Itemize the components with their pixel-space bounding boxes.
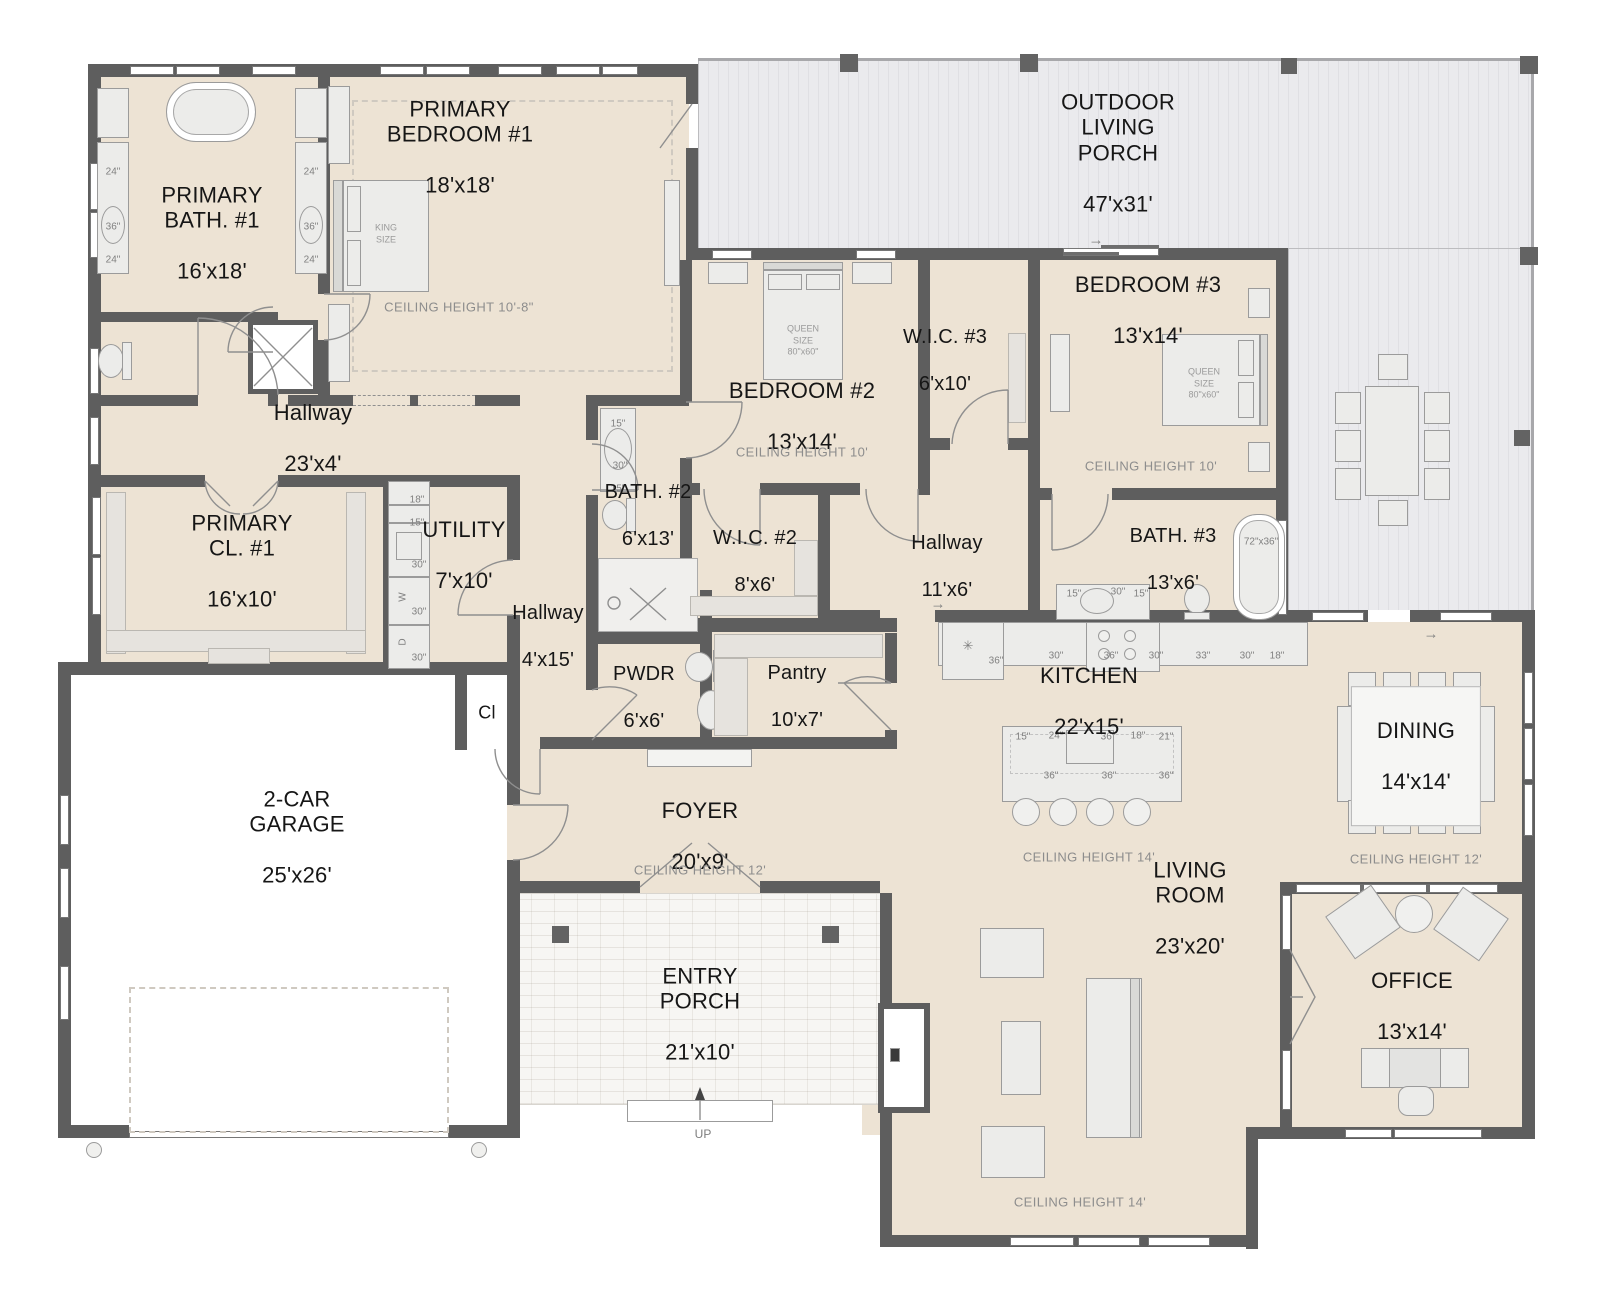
dimension-label: 15" — [1016, 732, 1031, 743]
dimension-label: D — [398, 638, 409, 645]
room-name: PWDR — [613, 663, 675, 686]
room-dims: 18'x18' — [387, 173, 533, 199]
dimension-label: 33" — [1196, 651, 1211, 662]
ceiling-label: CEILING HEIGHT 10' — [736, 445, 868, 460]
dimension-label: 21" — [1159, 732, 1174, 743]
dimension-label: 18" — [1270, 651, 1285, 662]
ceiling-label: CEILING HEIGHT 12' — [1350, 852, 1482, 867]
dimension-label: 30" — [412, 653, 427, 664]
room-dims: 14'x14' — [1377, 769, 1455, 795]
room-label-bedroom2: BEDROOM #2 13'x14' — [729, 352, 875, 480]
direction-arrow: → — [1424, 626, 1439, 643]
dimension-label: 36" — [1159, 771, 1174, 782]
room-name: PRIMARY CL. #1 — [191, 510, 292, 561]
room-dims: 16'x18' — [161, 259, 262, 285]
dimension-label: 30" — [1111, 587, 1126, 598]
room-name: FOYER — [662, 798, 739, 824]
room-name: W.I.C. #3 — [903, 326, 987, 349]
room-label-primary-bath: PRIMARY BATH. #1 16'x18' — [161, 156, 262, 309]
room-label-pwdr: PWDR 6'x6' — [613, 640, 675, 756]
door-arc — [513, 805, 568, 860]
dimension-label: ✳ — [963, 638, 974, 654]
room-dims: 11'x6' — [911, 579, 982, 602]
room-name: 2-CAR GARAGE — [249, 786, 344, 837]
door-arc — [324, 294, 370, 340]
room-dims: 4'x15' — [512, 649, 583, 672]
room-dims: 23'x20' — [1153, 934, 1226, 960]
ceiling-label: CEILING HEIGHT 12' — [634, 863, 766, 878]
room-label-garage: 2-CAR GARAGE 25'x26' — [249, 760, 344, 913]
room-name: UTILITY — [422, 517, 505, 543]
room-dims: 25'x26' — [249, 863, 344, 889]
room-label-bath3: BATH. #3 13'x6' — [1130, 502, 1217, 618]
door-arc — [1052, 494, 1108, 550]
door-arc — [495, 749, 540, 794]
dimension-label: 72"x36" — [1244, 537, 1278, 548]
room-label-wic3: W.I.C. #3 6'x10' — [903, 303, 987, 419]
room-name: W.I.C. #2 — [713, 527, 797, 550]
room-name: Hallway — [274, 400, 352, 426]
door-arc — [838, 677, 891, 730]
dimension-label: 24" — [304, 167, 319, 178]
ceiling-label: CEILING HEIGHT 10'-8" — [384, 300, 534, 315]
door-leaf — [660, 104, 692, 148]
room-dims: 47'x31' — [1061, 191, 1175, 217]
room-dims: 13'x14' — [1075, 323, 1221, 349]
room-label-wic2: W.I.C. #2 8'x6' — [713, 504, 797, 620]
room-label-closet: Cl — [478, 682, 495, 745]
dimension-label: 36" — [1102, 771, 1117, 782]
room-label-kitchen: KITCHEN 22'x15' — [1040, 637, 1138, 765]
room-name: BEDROOM #3 — [1075, 272, 1221, 298]
room-name: OUTDOOR LIVING PORCH — [1061, 89, 1175, 166]
up-label: UP — [695, 1127, 712, 1141]
dimension-label: 30" — [1149, 651, 1164, 662]
room-dims: 23'x4' — [274, 451, 352, 477]
room-name: DINING — [1377, 718, 1455, 744]
floor-plan: 24"36"24"24"36"24"15"30"15"18"15"30"W30"… — [0, 0, 1600, 1306]
room-dims: 21'x10' — [660, 1040, 740, 1066]
room-name: Hallway — [512, 602, 583, 625]
dimension-label: 36" — [304, 222, 319, 233]
room-label-pantry: Pantry 10'x7' — [767, 639, 826, 755]
door-arc — [228, 307, 273, 352]
dimension-label: W — [398, 592, 409, 601]
room-name: LIVING ROOM — [1153, 857, 1226, 908]
room-label-office: OFFICE 13'x14' — [1371, 942, 1453, 1070]
room-label-entry-porch: ENTRY PORCH 21'x10' — [660, 937, 740, 1090]
room-dims: 6'x10' — [903, 373, 987, 396]
room-dims: 8'x6' — [713, 574, 797, 597]
room-name: Pantry — [767, 662, 826, 685]
room-dims: 16'x10' — [191, 587, 292, 613]
office-opening — [1290, 950, 1315, 1044]
dimension-label: 15" — [611, 419, 626, 430]
ceiling-label: CEILING HEIGHT 14' — [1023, 850, 1155, 865]
room-name: PRIMARY BEDROOM #1 — [387, 96, 533, 147]
room-name: BEDROOM #2 — [729, 378, 875, 404]
room-name: ENTRY PORCH — [660, 963, 740, 1014]
room-label-hallway11: Hallway 11'x6' — [911, 509, 982, 625]
room-name: PRIMARY BATH. #1 — [161, 182, 262, 233]
ceiling-label: CEILING HEIGHT 14' — [1014, 1195, 1146, 1210]
shower-x — [630, 588, 666, 620]
room-dims: 6'x13' — [605, 528, 692, 551]
room-name: KITCHEN — [1040, 663, 1138, 689]
room-label-living: LIVING ROOM 23'x20' — [1153, 831, 1226, 984]
room-label-hallway4: Hallway 4'x15' — [512, 579, 583, 695]
dimension-label: 36" — [989, 656, 1004, 667]
room-name: OFFICE — [1371, 968, 1453, 994]
room-name: BATH. #2 — [605, 481, 692, 504]
room-label-foyer: FOYER 20'x9' — [662, 772, 739, 900]
dimension-label: 30" — [1240, 651, 1255, 662]
shower-drain — [608, 597, 620, 609]
room-label-primary-closet: PRIMARY CL. #1 16'x10' — [191, 484, 292, 637]
room-name: Cl — [478, 703, 495, 724]
room-label-outdoor-porch: OUTDOOR LIVING PORCH 47'x31' — [1061, 64, 1175, 243]
door-arc — [198, 318, 278, 395]
ceiling-label: CEILING HEIGHT 10' — [1085, 459, 1217, 474]
room-dims: 10'x7' — [767, 709, 826, 732]
dimension-label: 15" — [1067, 589, 1082, 600]
room-label-bath2: BATH. #2 6'x13' — [605, 458, 692, 574]
dimension-label: 24" — [304, 255, 319, 266]
dimension-label: 24" — [106, 255, 121, 266]
room-label-primary-bedroom: PRIMARY BEDROOM #1 18'x18' — [387, 70, 533, 223]
dimension-label: 36" — [106, 222, 121, 233]
dimension-label: 36" — [1044, 771, 1059, 782]
room-dims: 7'x10' — [422, 568, 505, 594]
room-dims: 6'x6' — [613, 710, 675, 733]
room-label-utility: UTILITY 7'x10' — [422, 491, 505, 619]
room-label-bedroom3: BEDROOM #3 13'x14' — [1075, 246, 1221, 374]
room-dims: 13'x6' — [1130, 572, 1217, 595]
room-name: Hallway — [911, 532, 982, 555]
room-dims: 22'x15' — [1040, 714, 1138, 740]
room-dims: 13'x14' — [1371, 1019, 1453, 1045]
room-label-dining: DINING 14'x14' — [1351, 686, 1481, 826]
dimension-label: 24" — [106, 167, 121, 178]
door-arc — [866, 489, 918, 541]
room-name: BATH. #3 — [1130, 525, 1217, 548]
bed-size-label: KING SIZE — [366, 222, 406, 245]
room-label-hallway23: Hallway 23'x4' — [274, 374, 352, 502]
